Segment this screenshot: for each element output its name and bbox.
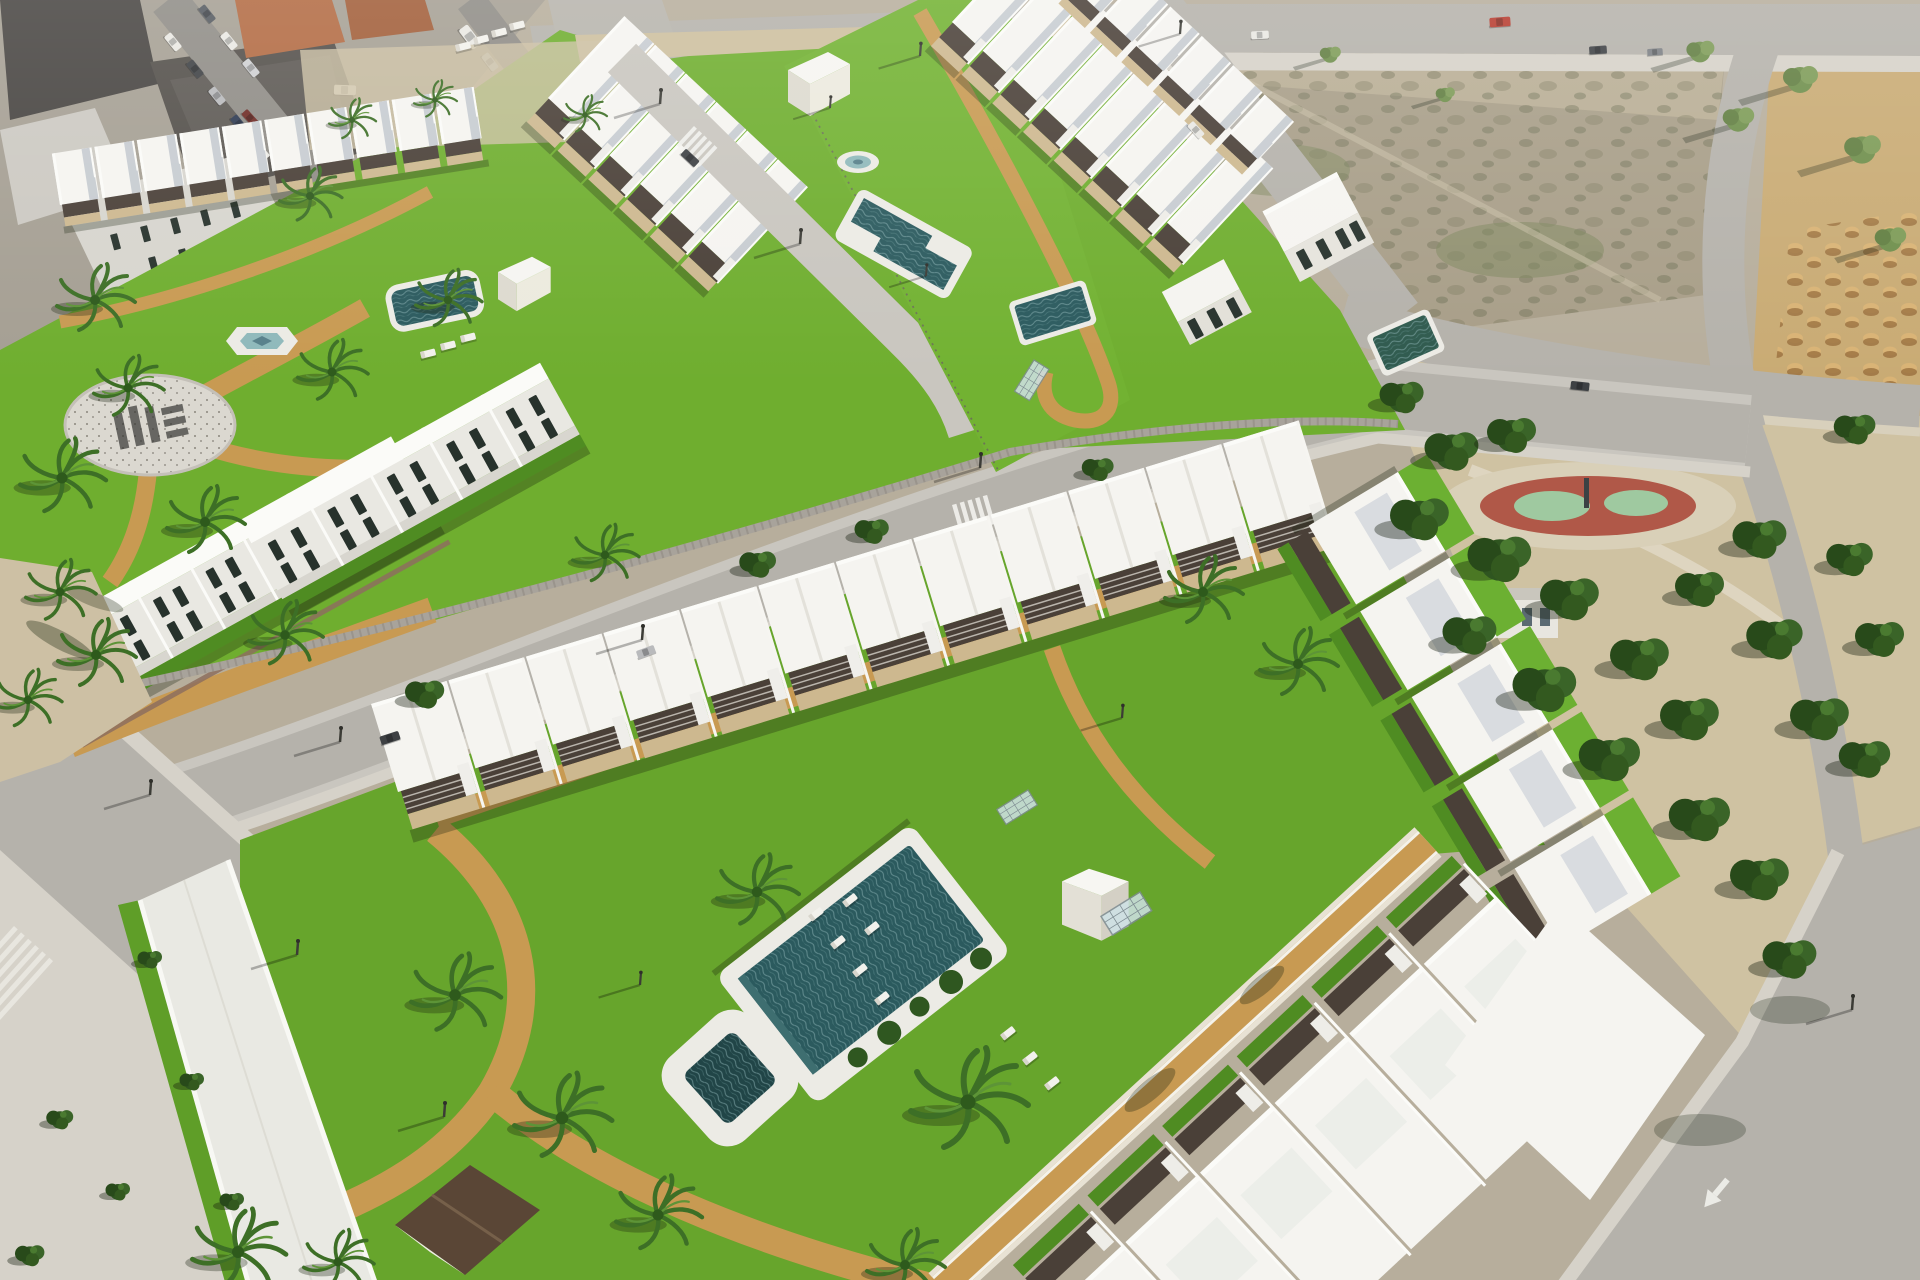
atmospheric-haze <box>0 0 1920 1280</box>
aerial-render <box>0 0 1920 1280</box>
aerial-photo <box>0 0 1920 1280</box>
